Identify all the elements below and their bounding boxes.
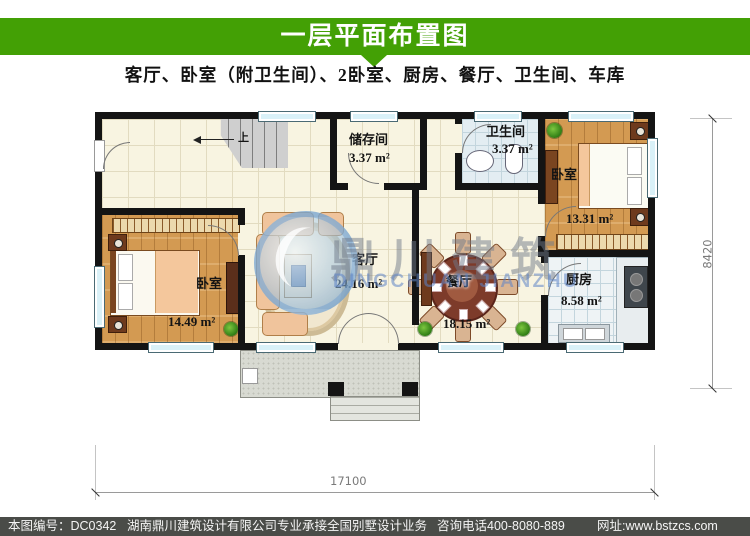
dimension-line-bottom — [95, 492, 655, 493]
window — [94, 266, 105, 328]
room-area: 3.37 m² — [349, 150, 390, 165]
window — [647, 138, 658, 198]
bed — [578, 143, 650, 209]
window — [148, 342, 214, 353]
dimension-total-depth: 8420 — [701, 239, 715, 268]
burner — [630, 289, 643, 302]
plant-icon — [224, 322, 238, 336]
room-name: 卫生间 — [486, 124, 533, 139]
wall — [455, 112, 462, 124]
window — [568, 111, 634, 122]
room-label-bedroom-left-name: 卧室 — [196, 276, 222, 291]
kitchen-sink-icon — [558, 324, 610, 343]
entry-door-opening — [338, 343, 398, 350]
burner — [630, 273, 643, 286]
footer-drawing-number: 本图编号：DC0342 — [8, 517, 116, 536]
stove-icon — [624, 266, 648, 308]
footer-phone: 咨询电话400-8080-889 — [437, 517, 565, 536]
dimension-total-width: 17100 — [330, 474, 367, 488]
wall — [420, 112, 427, 190]
wall — [541, 295, 548, 343]
room-label-bedroom-right-area: 13.31 m² — [566, 211, 613, 226]
nightstand — [108, 234, 127, 251]
bed-headboard — [111, 251, 116, 313]
room-label-bedroom-right-name: 卧室 — [551, 167, 577, 182]
stair-direction-line — [200, 139, 234, 140]
room-area: 3.37 m² — [492, 141, 533, 156]
wall — [538, 112, 545, 204]
footer-website: 网址:www.bstzcs.com — [597, 517, 718, 536]
room-label-bedroom-left-area: 14.49 m² — [168, 314, 215, 329]
nightstand — [630, 208, 650, 226]
entry-steps — [330, 396, 420, 421]
pillow — [118, 254, 133, 281]
room-label-storage: 储存间 3.37 m² — [349, 132, 390, 165]
bed — [110, 250, 200, 316]
nightstand — [108, 316, 127, 333]
sink-basin — [585, 328, 605, 340]
sink-basin — [563, 328, 583, 340]
room-list-subtitle: 客厅、卧室（附卫生间）、2卧室、厨房、餐厅、卫生间、车库 — [0, 62, 750, 87]
porch-column-right — [402, 382, 418, 396]
wall — [455, 183, 545, 190]
floor-plan-page: 一层平面布置图 客厅、卧室（附卫生间）、2卧室、厨房、餐厅、卫生间、车库 — [0, 0, 750, 536]
wall — [384, 183, 427, 190]
watermark-en: DINGCHUAN JIANZHU — [333, 271, 579, 293]
footer-company: 湖南鼎川建筑设计有限公司专业承接全国别墅设计业务 — [127, 517, 427, 536]
plant-icon — [516, 322, 530, 336]
bed-blanket — [579, 144, 590, 206]
wall — [238, 215, 245, 225]
porch-column-base — [242, 368, 258, 384]
window — [350, 111, 398, 122]
page-title: 一层平面布置图 — [0, 18, 750, 55]
room-name: 储存间 — [349, 132, 390, 147]
room-label-bathroom: 卫生间 3.37 m² — [486, 124, 533, 156]
wall — [238, 255, 245, 343]
wall — [95, 208, 245, 215]
sofa — [262, 312, 308, 336]
wall — [330, 183, 348, 190]
window — [258, 111, 316, 122]
porch-column-left — [328, 382, 344, 396]
window — [438, 342, 504, 353]
window — [566, 342, 624, 353]
footer-bar: 本图编号：DC0342 湖南鼎川建筑设计有限公司专业承接全国别墅设计业务 咨询电… — [0, 517, 750, 536]
wall — [330, 112, 337, 190]
pillow — [118, 283, 133, 310]
window — [474, 111, 522, 122]
pillow — [627, 177, 642, 205]
room-label-dining-area: 18.15 m² — [443, 316, 490, 331]
room-label-kitchen-area: 8.58 m² — [561, 293, 602, 308]
window — [256, 342, 316, 353]
stair-arrow-icon — [193, 136, 201, 144]
pillow — [627, 147, 642, 175]
stair-up-label: 上 — [238, 131, 249, 146]
plant-icon — [547, 123, 562, 138]
bed-blanket — [155, 251, 198, 313]
plant-icon — [418, 322, 432, 336]
